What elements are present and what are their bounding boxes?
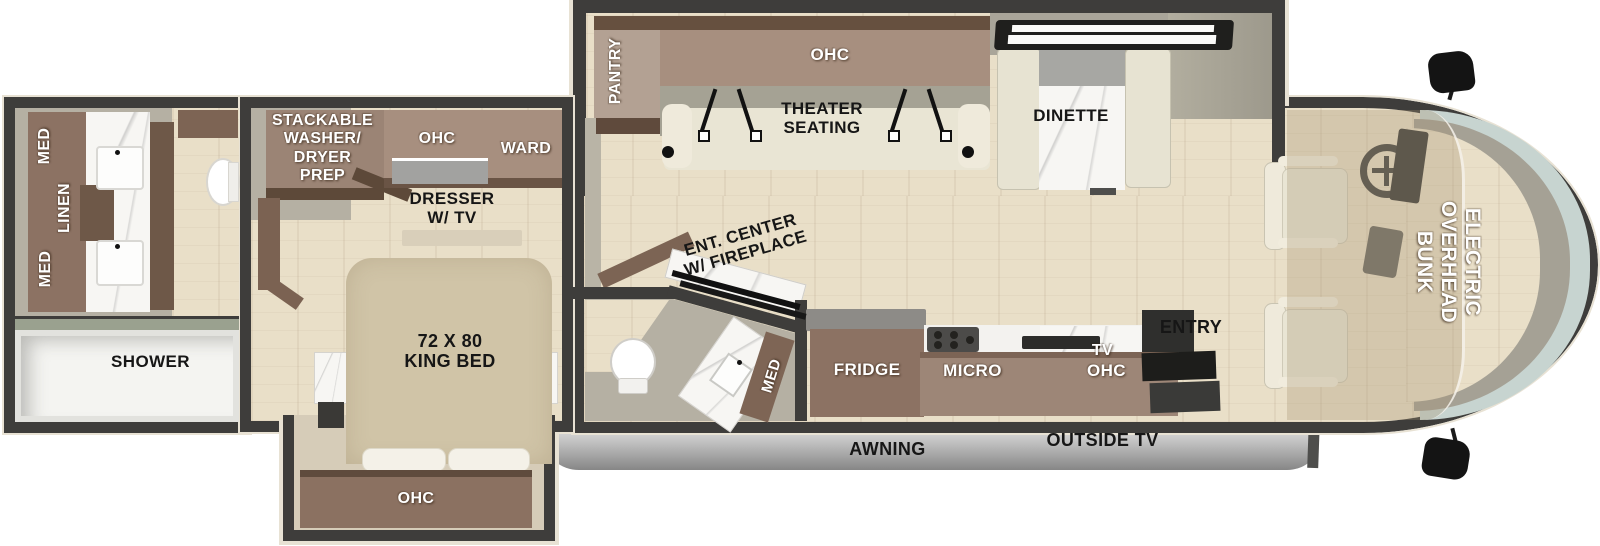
bath-med-lower-label: MED [37,234,53,304]
dresser [402,230,522,246]
bath-linen-label: LINEN [56,168,72,248]
dinette-table [1039,86,1125,190]
bath-med-upper-label: MED [36,111,52,181]
micro-label: MICRO [920,362,1025,381]
bedroom-window-sill [392,158,488,184]
bed-pillow [362,448,446,472]
bed-slideout-trim-right [555,433,559,541]
bath-sink [96,240,144,286]
half-bath-toilet-tank [618,378,648,394]
side-mirror-bottom-icon [1420,436,1472,482]
dinette-table-shade [1039,48,1125,86]
bedroom-ohc-label: OHC [407,130,467,148]
half-bath-wall-top [573,287,675,299]
pantry-label: PANTRY [607,27,625,115]
dinette-window-pane [1008,35,1217,44]
seat-dot [962,146,974,158]
fridge-top [806,309,926,331]
bath-toilet-tank [228,162,239,202]
bed-ohc-label: OHC [386,490,446,508]
theater-armrest-right [958,104,990,168]
bed-pillow [448,448,530,472]
dinette-label: DINETTE [1026,107,1116,126]
fridge-label: FRIDGE [812,361,922,380]
overhead-bunk-label: ELECTRIC OVERHEAD BUNK [1404,162,1484,362]
entry-step [1149,381,1220,413]
dinette-window-pane [1012,25,1214,32]
dresser-label: DRESSER W/ TV [382,190,522,227]
kitchen-ohc-label: OHC [1064,362,1149,381]
half-bath-faucet-dot [737,360,742,365]
cooktop-burner [934,331,942,339]
bath-sink [96,146,144,190]
bedroom-door-notch [318,402,344,428]
pantry-cabinet [594,30,660,118]
shower-head-band [15,316,239,330]
bed-slideout-trim-left [279,420,283,541]
rear-bath-floor [172,108,239,318]
washer-dryer-label: STACKABLE WASHER/ DRYER PREP [250,112,395,186]
recline-tip [698,130,710,142]
theater-seating-label: THEATER SEATING [762,100,882,137]
entry-label: ENTRY [1146,318,1236,338]
shower-pan [15,330,239,422]
bath-faucet-dot [115,150,120,155]
awning-label: AWNING [800,440,975,460]
rv-floorplan: AWNING OUTSIDE TV PANTRY OHC THEATER SEA… [0,0,1600,546]
bed-slideout-trim-bottom [279,541,559,545]
kitchen-tv-label: TV [1080,342,1125,360]
upper-cabinet-strip [594,16,990,30]
theater-armrest-left [662,104,692,168]
shower-label: SHOWER [88,353,213,372]
bath-faucet-dot [115,244,120,249]
ward-label: WARD [486,140,566,158]
recline-tip [750,130,762,142]
nightstand-left [314,352,348,404]
slideout-trim-right [1285,0,1289,106]
side-mirror-top-icon [1427,49,1477,94]
dinette-table-base [1090,188,1116,195]
dinette-bench-right [1125,48,1171,188]
living-wall-liner [585,118,601,296]
bath-linen-cabinet [80,185,114,241]
recline-tip [888,130,900,142]
outside-tv-label: OUTSIDE TV [1005,431,1200,451]
toilet-shelf [178,110,238,138]
king-bed-label: 72 X 80 KING BED [370,332,530,372]
bath-tall-cabinet [150,122,174,310]
recline-tip [940,130,952,142]
pantry-base [596,118,666,134]
living-ohc-label: OHC [798,46,862,65]
seat-dot [662,146,674,158]
entry-step [1142,351,1217,382]
washer-dryer-cabinet-edge [266,188,384,200]
